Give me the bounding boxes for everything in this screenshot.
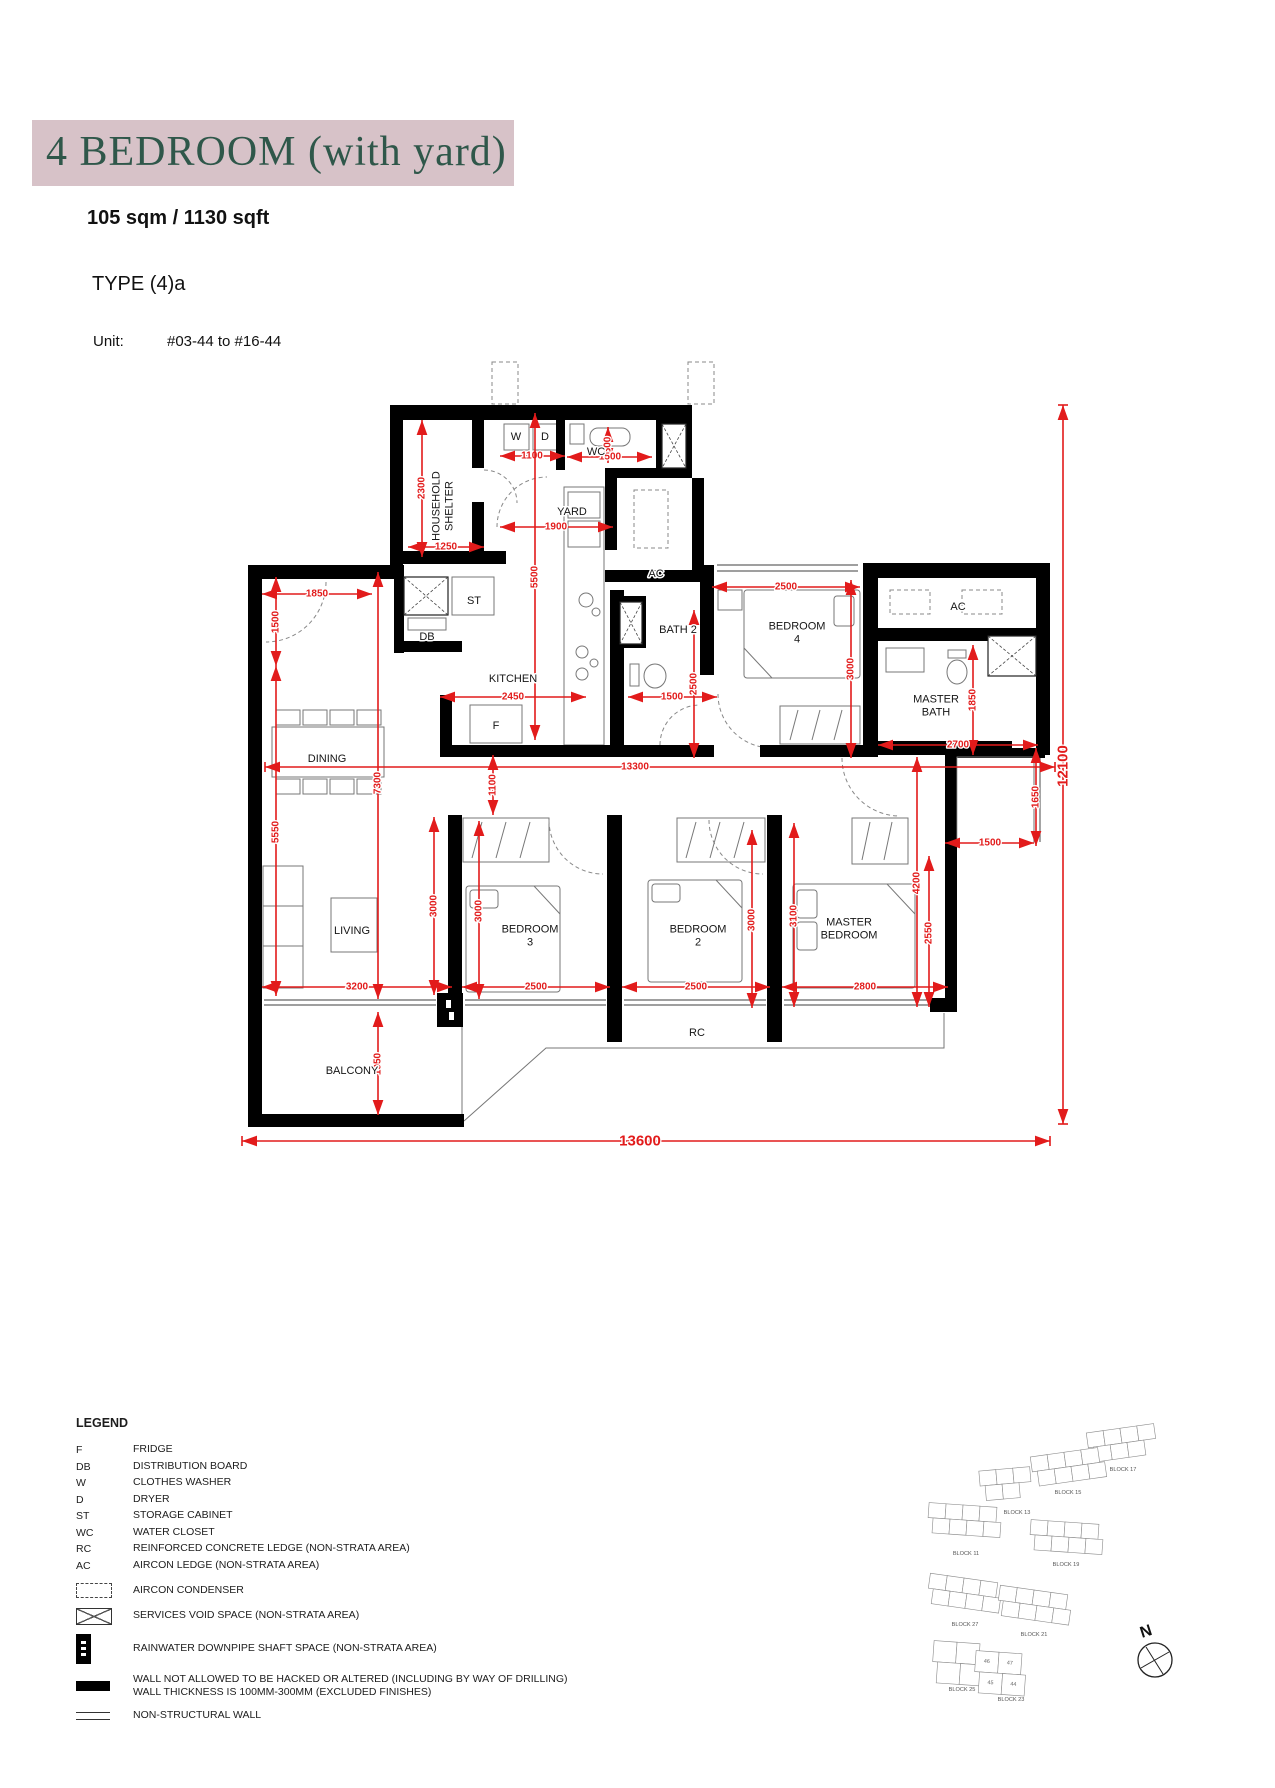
room-label: YARD (557, 506, 587, 518)
legend-item-label: NON-STRUCTURAL WALL (133, 1709, 261, 1722)
svg-text:N: N (1138, 1622, 1154, 1642)
svg-text:46: 46 (984, 1659, 990, 1665)
legend-item-label: AIRCON CONDENSER (133, 1584, 244, 1597)
dimension-label: 1850 (968, 688, 979, 711)
site-block-label: BLOCK 23 (998, 1697, 1025, 1703)
dimension-label: 2500 (685, 982, 708, 993)
dimension-label: 1500 (979, 838, 1002, 849)
room-label: KITCHEN (489, 673, 537, 685)
legend-symbol: ST (76, 1510, 133, 1522)
site-block (1029, 1520, 1104, 1555)
unit-numbers-row: Unit: #03-44 to #16-44 (93, 333, 124, 350)
site-block (1030, 1447, 1106, 1487)
room-label: D (541, 431, 549, 443)
unit-range: #03-44 to #16-44 (167, 333, 281, 350)
legend-item: WALL NOT ALLOWED TO BE HACKED OR ALTERED… (76, 1673, 836, 1699)
unit-type-banner: 4 BEDROOM (with yard) (32, 120, 514, 186)
dimension-label: 1900 (545, 522, 568, 533)
site-block: 46474544 (973, 1651, 1027, 1696)
dimension-label: 12100 (1055, 745, 1072, 787)
dimension-label: 3000 (846, 657, 857, 680)
legend-item: DDRYER (76, 1492, 836, 1508)
site-block-label: BLOCK 13 (1004, 1510, 1031, 1516)
non-structural-wall-icon (76, 1710, 133, 1722)
unit-label: Unit: (93, 333, 124, 350)
dimension-label: 1850 (306, 589, 329, 600)
room-label: BATH 2 (659, 624, 697, 636)
legend-symbol: W (76, 1477, 133, 1489)
room-label: DINING (308, 753, 347, 765)
page-title: 4 BEDROOM (with yard) (32, 120, 514, 185)
room-label: HOUSEHOLDSHELTER (431, 471, 456, 541)
dimension-label: 13300 (621, 762, 649, 773)
site-block (979, 1467, 1032, 1501)
dimension-label: 1100 (521, 451, 543, 462)
dimension-label: 3000 (429, 894, 440, 917)
room-label: RC (689, 1027, 705, 1039)
dimension-label: 2700 (947, 740, 970, 751)
dimension-label: 1100 (488, 774, 499, 796)
legend-item: WCWATER CLOSET (76, 1525, 836, 1541)
room-label: AC (950, 601, 965, 613)
room-label: DB (419, 631, 434, 643)
dimension-label: 2300 (417, 476, 428, 499)
site-block-label: BLOCK 15 (1055, 1490, 1082, 1496)
svg-text:44: 44 (1010, 1682, 1016, 1688)
legend-symbol: RC (76, 1543, 133, 1555)
services-void-icon (76, 1608, 133, 1625)
room-label: W (511, 431, 522, 443)
site-plan: BLOCK 17BLOCK 15BLOCK 13BLOCK 11BLOCK 19… (900, 1400, 1200, 1730)
dimension-label: 2500 (689, 672, 700, 695)
room-label: BALCONY (326, 1065, 379, 1077)
dimension-label: 1500 (661, 692, 684, 703)
dimension-label: 7300 (373, 771, 384, 794)
legend-item: SERVICES VOID SPACE (NON-STRATA AREA) (76, 1608, 836, 1625)
dimension-label: 5500 (530, 565, 541, 588)
legend-item: AIRCON CONDENSER (76, 1583, 836, 1599)
legend-item: WCLOTHES WASHER (76, 1475, 836, 1491)
site-block-label: BLOCK 19 (1053, 1562, 1080, 1568)
legend-item: NON-STRUCTURAL WALL (76, 1708, 836, 1724)
site-block-label: BLOCK 25 (949, 1687, 976, 1693)
dimension-label: 2500 (775, 582, 798, 593)
room-label: F (493, 720, 500, 732)
site-block-label: BLOCK 11 (953, 1551, 979, 1557)
svg-text:45: 45 (987, 1680, 993, 1686)
dimension-label: 3000 (747, 908, 758, 931)
dimension-label: 2800 (854, 982, 877, 993)
legend-item: RAINWATER DOWNPIPE SHAFT SPACE (NON-STRA… (76, 1634, 836, 1664)
site-block (927, 1503, 1002, 1538)
room-label: MASTERBEDROOM (821, 917, 878, 942)
site-block (926, 1573, 1002, 1613)
legend-item-label: RAINWATER DOWNPIPE SHAFT SPACE (NON-STRA… (133, 1642, 437, 1655)
legend-symbol: AC (76, 1560, 133, 1572)
dimension-label: 4200 (912, 871, 923, 894)
dimension-label: 1250 (435, 542, 458, 553)
legend-item-label: REINFORCED CONCRETE LEDGE (NON-STRATA AR… (133, 1542, 410, 1555)
dimension-label: 3000 (474, 899, 485, 922)
legend-item: STSTORAGE CABINET (76, 1508, 836, 1524)
legend-item: RCREINFORCED CONCRETE LEDGE (NON-STRATA … (76, 1541, 836, 1557)
site-block-label: BLOCK 17 (1110, 1467, 1137, 1473)
room-label: WC (587, 446, 605, 458)
legend-symbol: WC (76, 1527, 133, 1539)
legend-item-label: CLOTHES WASHER (133, 1476, 231, 1489)
room-label: MASTERBATH (913, 694, 959, 719)
legend-item-label: STORAGE CABINET (133, 1509, 233, 1522)
dimension-label: 1650 (1031, 785, 1042, 808)
legend-item-label: WATER CLOSET (133, 1526, 215, 1539)
legend-item: DBDISTRIBUTION BOARD (76, 1459, 836, 1475)
unit-type-code: TYPE (4)a (92, 273, 185, 296)
svg-text:47: 47 (1007, 1660, 1013, 1666)
legend: LEGEND FFRIDGEDBDISTRIBUTION BOARDWCLOTH… (76, 1416, 836, 1724)
legend-item: FFRIDGE (76, 1442, 836, 1458)
dimension-label: 3100 (789, 904, 800, 927)
room-label: AC (648, 568, 663, 580)
legend-item-label: DRYER (133, 1493, 170, 1506)
legend-item-label: DISTRIBUTION BOARD (133, 1460, 247, 1473)
dimension-label: 13600 (619, 1133, 661, 1150)
aircon-condenser-icon (76, 1583, 133, 1598)
dimension-label: 2450 (502, 692, 525, 703)
dimension-label: 2550 (924, 921, 935, 944)
no-hack-wall-icon (76, 1680, 133, 1692)
legend-title: LEGEND (76, 1416, 836, 1430)
legend-item-label: WALL NOT ALLOWED TO BE HACKED OR ALTERED… (133, 1673, 567, 1699)
north-compass-icon: N (1138, 1622, 1172, 1677)
dimension-label: 5550 (271, 820, 282, 843)
legend-symbol: D (76, 1494, 133, 1506)
room-label: ST (467, 595, 481, 607)
floor-plan: 2300125011006001500190055001850150024501… (225, 350, 1085, 1160)
unit-area: 105 sqm / 1130 sqft (87, 207, 269, 230)
dimension-label: 3200 (346, 982, 369, 993)
dimension-label: 2500 (525, 982, 548, 993)
site-block (996, 1585, 1072, 1625)
legend-item-label: AIRCON LEDGE (NON-STRATA AREA) (133, 1559, 319, 1572)
dimension-label: 1500 (271, 610, 282, 633)
legend-item-label: FRIDGE (133, 1443, 173, 1456)
legend-symbol: F (76, 1444, 133, 1456)
room-label: LIVING (334, 925, 370, 937)
legend-item-label: SERVICES VOID SPACE (NON-STRATA AREA) (133, 1609, 359, 1622)
site-block-label: BLOCK 21 (1021, 1632, 1048, 1638)
site-block-label: BLOCK 27 (952, 1622, 979, 1628)
legend-symbol: DB (76, 1461, 133, 1473)
rainwater-shaft-icon (76, 1634, 133, 1664)
legend-item: ACAIRCON LEDGE (NON-STRATA AREA) (76, 1558, 836, 1574)
